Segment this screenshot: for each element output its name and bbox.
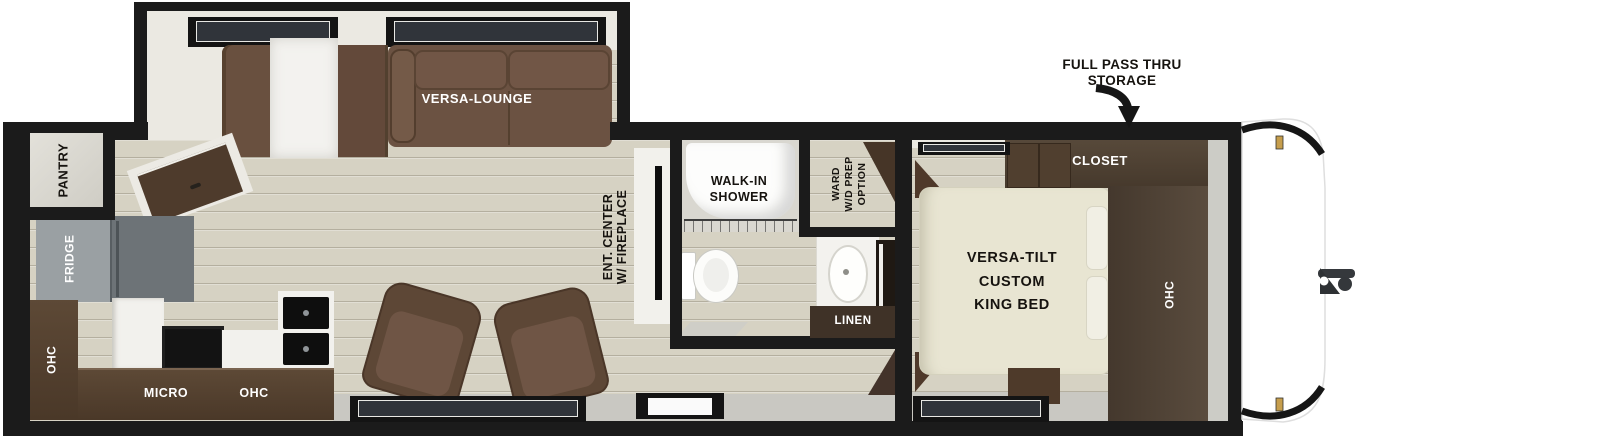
fridge-label: FRIDGE: [63, 228, 76, 290]
kitchen-counter-white: [222, 330, 280, 370]
ent-center-label-line2: W/ FIREPLACE: [615, 190, 629, 284]
kitchen-ohc-tall-label: OHC: [45, 343, 58, 377]
shower-label-line1: WALK-IN: [711, 174, 767, 188]
ent-center-label: ENT. CENTER W/ FIREPLACE: [601, 172, 631, 302]
bedroom-side-walkway: [1205, 140, 1228, 422]
bedroom-bottom-window: [913, 396, 1049, 422]
lounge-mid-section: [338, 45, 388, 157]
closet-label: CLOSET: [1040, 154, 1160, 169]
closet-cabinet-box: [1007, 143, 1039, 188]
drawer-knob: [303, 310, 309, 316]
bathroom-left-wall: [670, 140, 682, 340]
down-arrow-icon: [1088, 80, 1148, 135]
front-cap-body: [1242, 119, 1325, 422]
linen-label: LINEN: [813, 315, 893, 328]
slideout-window-right: [386, 17, 606, 47]
ward-label-line1: WARD: [830, 167, 842, 201]
kitchen-lower-counter: [78, 368, 334, 420]
drawer-knob: [303, 346, 309, 352]
entertainment-center: [634, 148, 674, 324]
cooktop: [162, 326, 224, 370]
entry-door-panel: [648, 398, 712, 415]
ward-label-line3: OPTION: [856, 163, 868, 206]
sofa-back-cushion: [414, 50, 508, 90]
kitchen-ohc-overhead-label: OHC: [222, 386, 286, 400]
shower-ward-divider-wall: [799, 140, 810, 237]
king-bed-label-line1: VERSA-TILT: [967, 250, 1057, 266]
ward-bottom-wall: [810, 227, 895, 237]
king-bed-label-line2: CUSTOM: [979, 274, 1045, 290]
front-cap: [1228, 108, 1378, 437]
shower-label: WALK-IN SHOWER: [682, 174, 796, 205]
bottom-wall: [3, 421, 1243, 436]
kitchen-upper-cabinet: [112, 298, 164, 370]
lounge-table: [270, 38, 338, 158]
cap-hinge-top: [1276, 136, 1283, 149]
cap-hinge-bottom: [1276, 398, 1283, 411]
full-pass-thru-line1: FULL PASS THRU: [1062, 57, 1181, 72]
king-bed-label-line3: KING BED: [974, 297, 1050, 313]
tv-icon: [655, 166, 662, 300]
sink-drain: [843, 269, 849, 275]
versa-lounge-label: VERSA-LOUNGE: [397, 92, 557, 107]
travel-trailer-floorplan: VERSA-LOUNGE FRIDGE OHC MICRO OHC ENT. C…: [0, 0, 1600, 437]
bedroom-ohc-label: OHC: [1163, 277, 1176, 313]
pantry-label: PANTRY: [57, 135, 72, 205]
ward-label: WARD W/D PREP OPTION: [830, 146, 872, 222]
shower-label-line2: SHOWER: [710, 190, 769, 204]
ent-center-label-line1: ENT. CENTER: [601, 194, 615, 280]
living-room-window: [350, 396, 586, 422]
sofa-back-cushion: [508, 50, 610, 90]
kitchen-drawer-unit: [278, 291, 334, 370]
bedroom-top-window: [918, 142, 1010, 155]
bedroom-wardrobe-ohc: [1108, 186, 1208, 422]
king-bed-label: VERSA-TILT CUSTOM KING BED: [932, 247, 1092, 318]
shower-glass-door: [684, 219, 797, 232]
tongue-jack-icon: [1318, 268, 1355, 294]
micro-label: MICRO: [131, 386, 201, 400]
bedroom-partition-wall: [895, 122, 912, 434]
fridge-handle: [116, 221, 119, 297]
bathroom-mirror-glass: [879, 244, 883, 306]
fridge-door: [110, 216, 194, 302]
entry-door: [636, 393, 724, 419]
toilet-bowl-inner: [703, 258, 729, 292]
ward-label-line2: W/D PREP: [843, 156, 855, 211]
fridge: [36, 216, 192, 302]
